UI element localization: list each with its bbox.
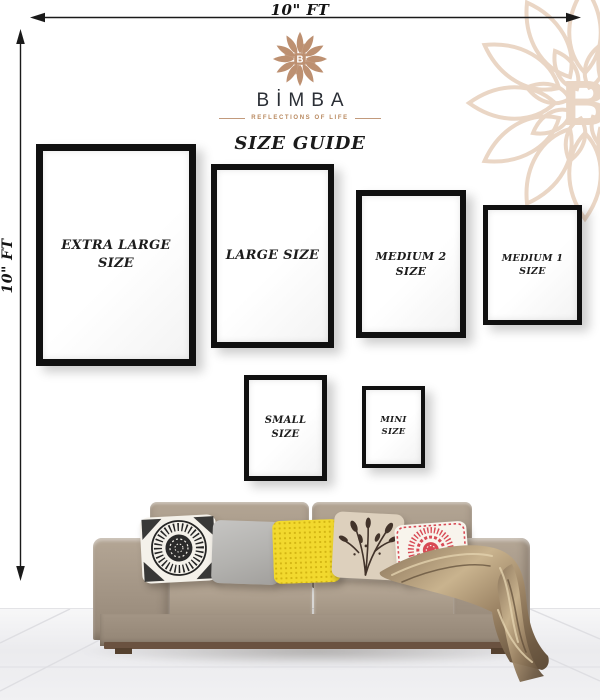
- frame-label: EXTRA LARGE SIZE: [61, 237, 170, 273]
- brand-header: B BİMBA REFLECTIONS OF LIFE SIZE GUIDE: [150, 30, 450, 154]
- logo-monogram: B: [297, 55, 304, 66]
- frame-small: SMALL SIZE: [244, 375, 327, 481]
- brand-watermark-flower-icon: B: [450, 0, 600, 238]
- frame-mini: MINI SIZE: [362, 386, 425, 468]
- top-width-label: 10" FT: [0, 1, 600, 19]
- watermark-monogram: B: [562, 67, 600, 139]
- frame-medium-1: MEDIUM 1 SIZE: [483, 205, 582, 325]
- sofa-foot-left: [115, 648, 132, 654]
- left-height-arrow: [0, 0, 40, 700]
- brand-name: BİMBA: [150, 90, 450, 112]
- frame-large: LARGE SIZE: [211, 164, 334, 348]
- frame-label: MEDIUM 2 SIZE: [376, 249, 447, 280]
- plain-gray-pillow: [211, 520, 281, 585]
- frame-label: MINI SIZE: [380, 415, 406, 439]
- left-height-label: 10" FT: [0, 236, 16, 296]
- frame-label: SMALL SIZE: [265, 414, 307, 442]
- tagline-left-rule: [219, 118, 245, 119]
- tagline-right-rule: [355, 118, 381, 119]
- frame-medium-2: MEDIUM 2 SIZE: [356, 190, 466, 338]
- brand-logo-flower-icon: B: [271, 30, 329, 88]
- arrow-up-head-icon: [16, 29, 25, 44]
- frame-extra-large: EXTRA LARGE SIZE: [36, 144, 196, 366]
- brand-tagline: REFLECTIONS OF LIFE: [251, 115, 348, 121]
- satin-throw-blanket: [372, 520, 557, 692]
- frame-label: LARGE SIZE: [226, 247, 319, 265]
- arrow-down-head-icon: [16, 566, 25, 581]
- frame-label: MEDIUM 1 SIZE: [502, 252, 564, 279]
- black-white-mandala-pillow: [139, 514, 218, 584]
- size-guide-poster: B 10" FT 10" FT: [0, 0, 600, 700]
